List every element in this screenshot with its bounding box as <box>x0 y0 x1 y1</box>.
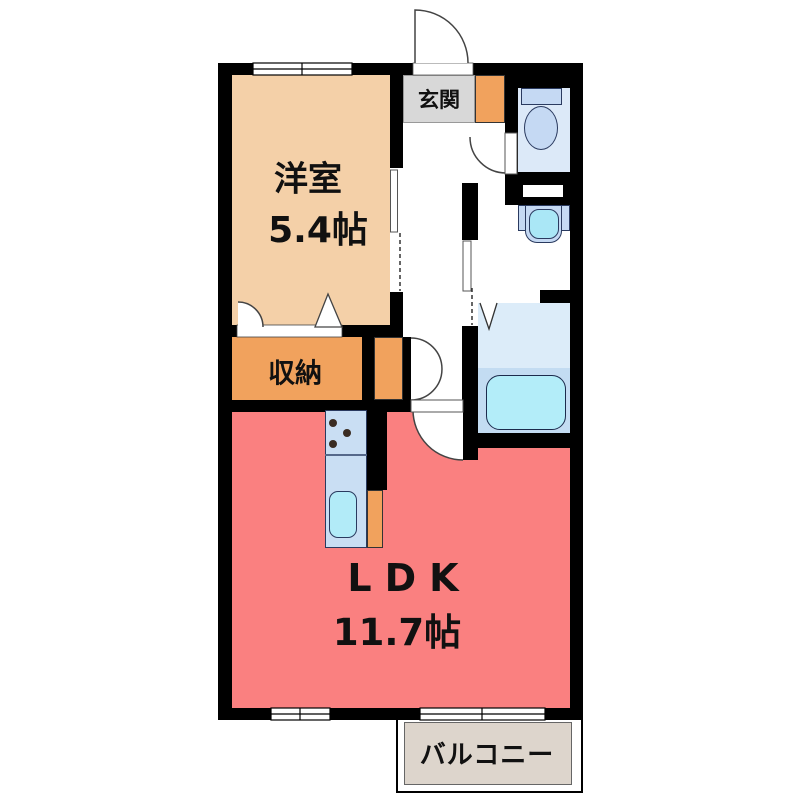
washbasin-sink <box>529 209 559 239</box>
wall-western-room-bottom <box>232 325 390 337</box>
floor-plan: 洋室 5.4帖 収納 玄関 LDK 11.7帖 バルコニー <box>0 0 800 800</box>
wall-storage-divider <box>362 337 374 400</box>
toilet-door-swing-arc <box>470 137 506 173</box>
stove-burner-3 <box>329 440 337 448</box>
stove-burner-1 <box>329 419 337 427</box>
western-room-label: 洋室 <box>274 152 342 201</box>
wall-right <box>570 63 583 720</box>
entrance-door-swing-arc <box>415 10 468 63</box>
toilet-tank <box>521 88 562 105</box>
ldk-door-leaf <box>411 400 463 412</box>
western-room-size: 5.4帖 <box>268 201 368 253</box>
wall-kitchen-stub <box>367 408 387 490</box>
toilet-door-swing-fill <box>470 137 506 173</box>
bathroom-floor-upper <box>478 303 570 368</box>
entrance-label: 玄関 <box>418 84 460 114</box>
hall-closet <box>374 337 403 400</box>
toilet-bowl <box>524 106 558 150</box>
wall-left <box>218 63 232 720</box>
wall-toilet-top <box>505 63 583 88</box>
wall-toilet-bottom <box>505 172 583 205</box>
entrance-cabinet <box>475 75 505 123</box>
stove-burner-2 <box>343 429 351 437</box>
wall-western-room-right <box>390 63 403 337</box>
bathroom-door-opening <box>478 290 540 303</box>
wall-bath-divider <box>540 290 570 303</box>
hall-closet-door-swing <box>411 338 442 400</box>
wall-washroom-left <box>462 183 478 460</box>
bathtub <box>486 375 566 430</box>
kitchen-counter-end <box>367 490 383 548</box>
ldk-floor-right <box>462 448 570 708</box>
ldk-size: 11.7帖 <box>333 602 461 656</box>
ldk-label: LDK <box>334 556 471 600</box>
kitchen-sink <box>329 491 357 538</box>
wall-bathroom-bottom <box>462 433 583 448</box>
wall-bottom <box>218 708 583 720</box>
storage-label: 収納 <box>268 352 322 391</box>
kitchen-counter-divider <box>325 454 367 456</box>
balcony-label: バルコニー <box>420 735 554 772</box>
